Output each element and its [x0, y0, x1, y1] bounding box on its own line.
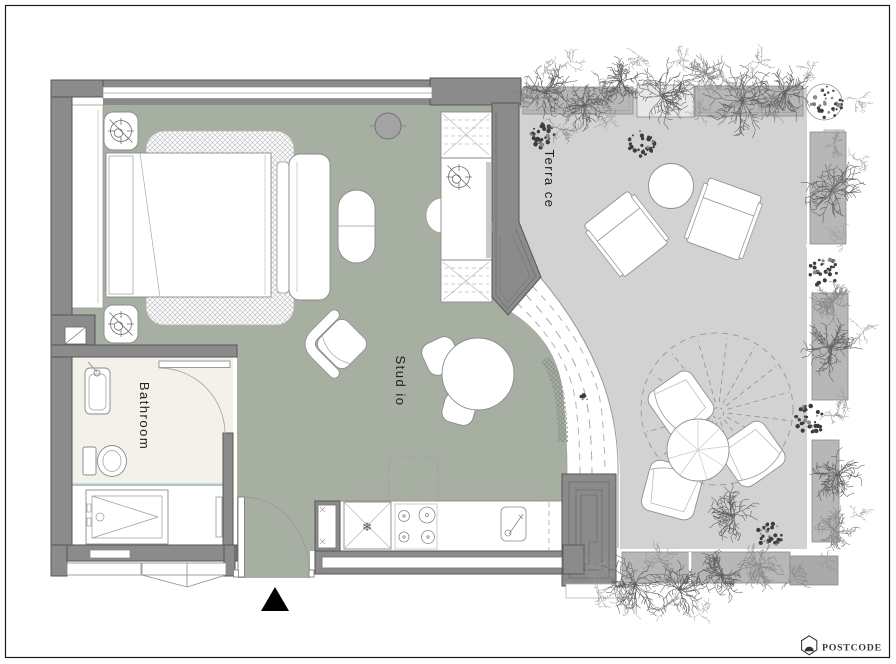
svg-text:Bathroom: Bathroom	[137, 382, 152, 450]
svg-text:POSTCODE: POSTCODE	[822, 643, 882, 654]
svg-text:Terra ce: Terra ce	[542, 150, 557, 209]
svg-text:Stud io: Stud io	[393, 356, 408, 407]
svg-text:❄: ❄	[362, 520, 372, 534]
